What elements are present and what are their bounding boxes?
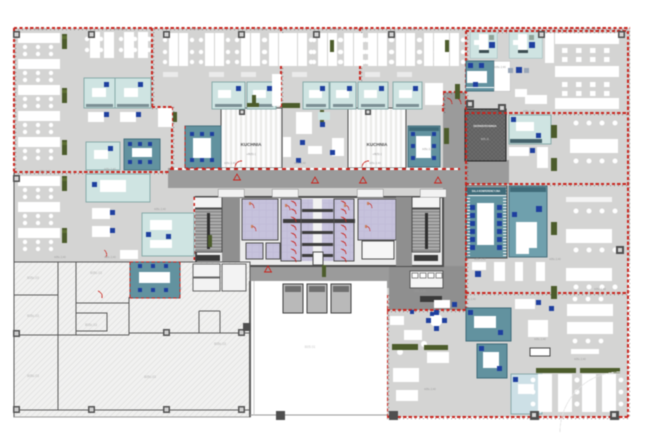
svg-text:b05c 2,40: b05c 2,40 <box>594 287 606 291</box>
svg-text:b05c 2,40: b05c 2,40 <box>154 207 166 211</box>
svg-text:B05c.03: B05c.03 <box>90 271 102 275</box>
svg-text:b05c 2,40: b05c 2,40 <box>584 27 596 31</box>
svg-text:B05.01: B05.01 <box>305 345 316 349</box>
svg-text:b05c 2,40: b05c 2,40 <box>254 27 266 31</box>
svg-text:B05c.03: B05c.03 <box>27 276 39 280</box>
svg-text:b05c 2,40: b05c 2,40 <box>329 27 341 31</box>
svg-text:b05c 2,40: b05c 2,40 <box>294 161 306 165</box>
svg-text:b05c 2,40: b05c 2,40 <box>404 27 416 31</box>
svg-text:b05c 2,40: b05c 2,40 <box>534 337 546 341</box>
svg-text:b05c 2,40: b05c 2,40 <box>294 275 306 279</box>
svg-text:+B(5)-]: +B(5)-] <box>372 152 381 156</box>
svg-text:b05c 2,40: b05c 2,40 <box>224 161 236 165</box>
svg-text:b05c 2,40: b05c 2,40 <box>369 161 381 165</box>
svg-text:B05c.03: B05c.03 <box>27 374 39 378</box>
svg-text:B05.11: B05.11 <box>481 137 490 141</box>
svg-text:b05c 2,40: b05c 2,40 <box>523 109 535 113</box>
svg-text:B05c.03: B05c.03 <box>214 342 226 346</box>
svg-text:b05c 2,40: b05c 2,40 <box>54 255 66 259</box>
svg-text:b05c 2,40: b05c 2,40 <box>114 27 126 31</box>
svg-text:b05c 2,40: b05c 2,40 <box>104 167 116 171</box>
svg-text:B05c.03: B05c.03 <box>85 323 97 327</box>
svg-text:b05c 2,40: b05c 2,40 <box>104 255 116 259</box>
svg-text:b05c 2,40: b05c 2,40 <box>464 297 476 301</box>
svg-text:+B(5)-]: +B(5)-] <box>246 152 255 156</box>
svg-text:b05c 2,40: b05c 2,40 <box>190 27 202 31</box>
svg-text:b05c 2,40: b05c 2,40 <box>34 27 46 31</box>
svg-text:b05c 2,40: b05c 2,40 <box>494 65 506 69</box>
svg-text:SALA KONFERENCYJNA: SALA KONFERENCYJNA <box>472 190 501 193</box>
svg-text:b05c 2,40: b05c 2,40 <box>414 289 426 293</box>
svg-text:B05c.03: B05c.03 <box>27 314 39 318</box>
svg-text:b05c 2,40: b05c 2,40 <box>574 357 586 361</box>
svg-text:KUCHNIA: KUCHNIA <box>367 142 388 147</box>
svg-text:b05c 2,40: b05c 2,40 <box>424 387 436 391</box>
svg-text:b05c 2,40: b05c 2,40 <box>549 257 561 261</box>
svg-text:b05c 2,40: b05c 2,40 <box>474 257 486 261</box>
svg-text:b05c 2,40: b05c 2,40 <box>39 169 51 173</box>
svg-text:KUCHNIA: KUCHNIA <box>241 142 262 147</box>
svg-text:SERWEROWNIA: SERWEROWNIA <box>473 124 497 128</box>
svg-text:B05c.03: B05c.03 <box>144 375 156 379</box>
svg-text:b05c 2,40: b05c 2,40 <box>422 147 434 151</box>
